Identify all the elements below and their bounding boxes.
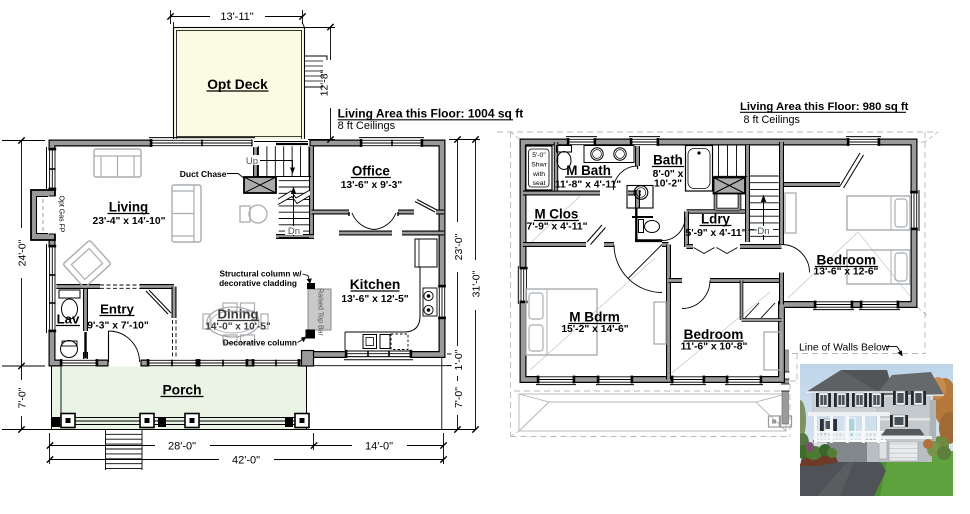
svg-text:15'-2" x 14'-6": 15'-2" x 14'-6": [561, 324, 628, 335]
svg-text:28'-0": 28'-0": [168, 441, 196, 453]
svg-text:Living: Living: [109, 200, 148, 215]
svg-text:Entry: Entry: [100, 302, 134, 317]
svg-text:with: with: [532, 171, 545, 178]
svg-text:Line of Walls Below: Line of Walls Below: [799, 343, 890, 354]
svg-text:M Bath: M Bath: [566, 163, 611, 178]
svg-text:13'-11": 13'-11": [220, 11, 253, 23]
svg-text:7'-9" x 4'-11": 7'-9" x 4'-11": [526, 222, 587, 233]
svg-text:13'-6" x 12'-5": 13'-6" x 12'-5": [341, 294, 408, 305]
svg-text:13'-6" x 9'-3": 13'-6" x 9'-3": [341, 180, 403, 191]
svg-text:Kitchen: Kitchen: [350, 277, 401, 292]
svg-text:Lav: Lav: [57, 312, 80, 327]
svg-text:5'-9" x 4'-11": 5'-9" x 4'-11": [685, 228, 746, 239]
svg-text:Shwr: Shwr: [531, 161, 547, 168]
svg-text:11'-8" x 4'-11": 11'-8" x 4'-11": [555, 180, 621, 191]
svg-text:M Bdrm: M Bdrm: [569, 310, 620, 325]
svg-text:Bath: Bath: [653, 153, 683, 168]
svg-text:12'-8": 12'-8": [319, 69, 331, 96]
svg-text:14'-0" x 10'-5": 14'-0" x 10'-5": [205, 322, 271, 333]
svg-text:seat: seat: [533, 180, 546, 187]
svg-text:Bedroom: Bedroom: [816, 253, 876, 268]
svg-text:Office: Office: [352, 164, 390, 179]
svg-text:Opt Gas FP: Opt Gas FP: [58, 196, 65, 233]
svg-text:Duct Chase: Duct Chase: [180, 169, 227, 179]
svg-text:Living Area this Floor: 980 sq: Living Area this Floor: 980 sq ft: [740, 101, 909, 113]
svg-text:1'-0": 1'-0": [453, 349, 465, 370]
svg-text:10'-2": 10'-2": [654, 179, 682, 190]
svg-text:Ldry: Ldry: [701, 212, 731, 227]
svg-text:23'-0": 23'-0": [453, 233, 465, 260]
svg-text:Dn: Dn: [757, 226, 769, 237]
svg-text:Opt Deck: Opt Deck: [207, 77, 268, 92]
svg-text:decorative cladding: decorative cladding: [219, 278, 297, 288]
svg-text:31'-0": 31'-0": [471, 270, 483, 297]
svg-text:23'-4" x 14'-10": 23'-4" x 14'-10": [92, 216, 165, 227]
svg-text:5'-0": 5'-0": [532, 152, 546, 159]
svg-text:8 ft Ceilings: 8 ft Ceilings: [338, 120, 396, 132]
svg-text:Living Area this Floor: 1004 s: Living Area this Floor: 1004 sq ft: [338, 107, 524, 121]
svg-text:Decorative column: Decorative column: [223, 338, 297, 348]
svg-text:9'-3" x 7'-10": 9'-3" x 7'-10": [87, 321, 149, 332]
svg-text:7'-0": 7'-0": [453, 387, 465, 408]
svg-text:14'-0": 14'-0": [365, 441, 393, 453]
svg-text:42'-0": 42'-0": [232, 455, 260, 467]
svg-text:M Clos: M Clos: [534, 207, 578, 222]
svg-text:Porch: Porch: [162, 383, 201, 398]
svg-text:11'-6" x 10'-8": 11'-6" x 10'-8": [681, 342, 748, 353]
svg-text:Dining: Dining: [217, 307, 258, 322]
svg-text:Dn: Dn: [288, 226, 300, 237]
svg-text:Bedroom: Bedroom: [684, 327, 744, 342]
svg-text:8 ft Ceilings: 8 ft Ceilings: [744, 114, 801, 126]
svg-text:13'-6" x 12-6": 13'-6" x 12-6": [814, 267, 879, 278]
svg-text:Up: Up: [246, 156, 258, 167]
svg-text:24'-0": 24'-0": [17, 239, 29, 266]
svg-text:7'-0": 7'-0": [17, 387, 29, 408]
svg-text:Raised Top Bar: Raised Top Bar: [317, 288, 324, 336]
svg-text:Structural column w/: Structural column w/: [219, 269, 302, 279]
